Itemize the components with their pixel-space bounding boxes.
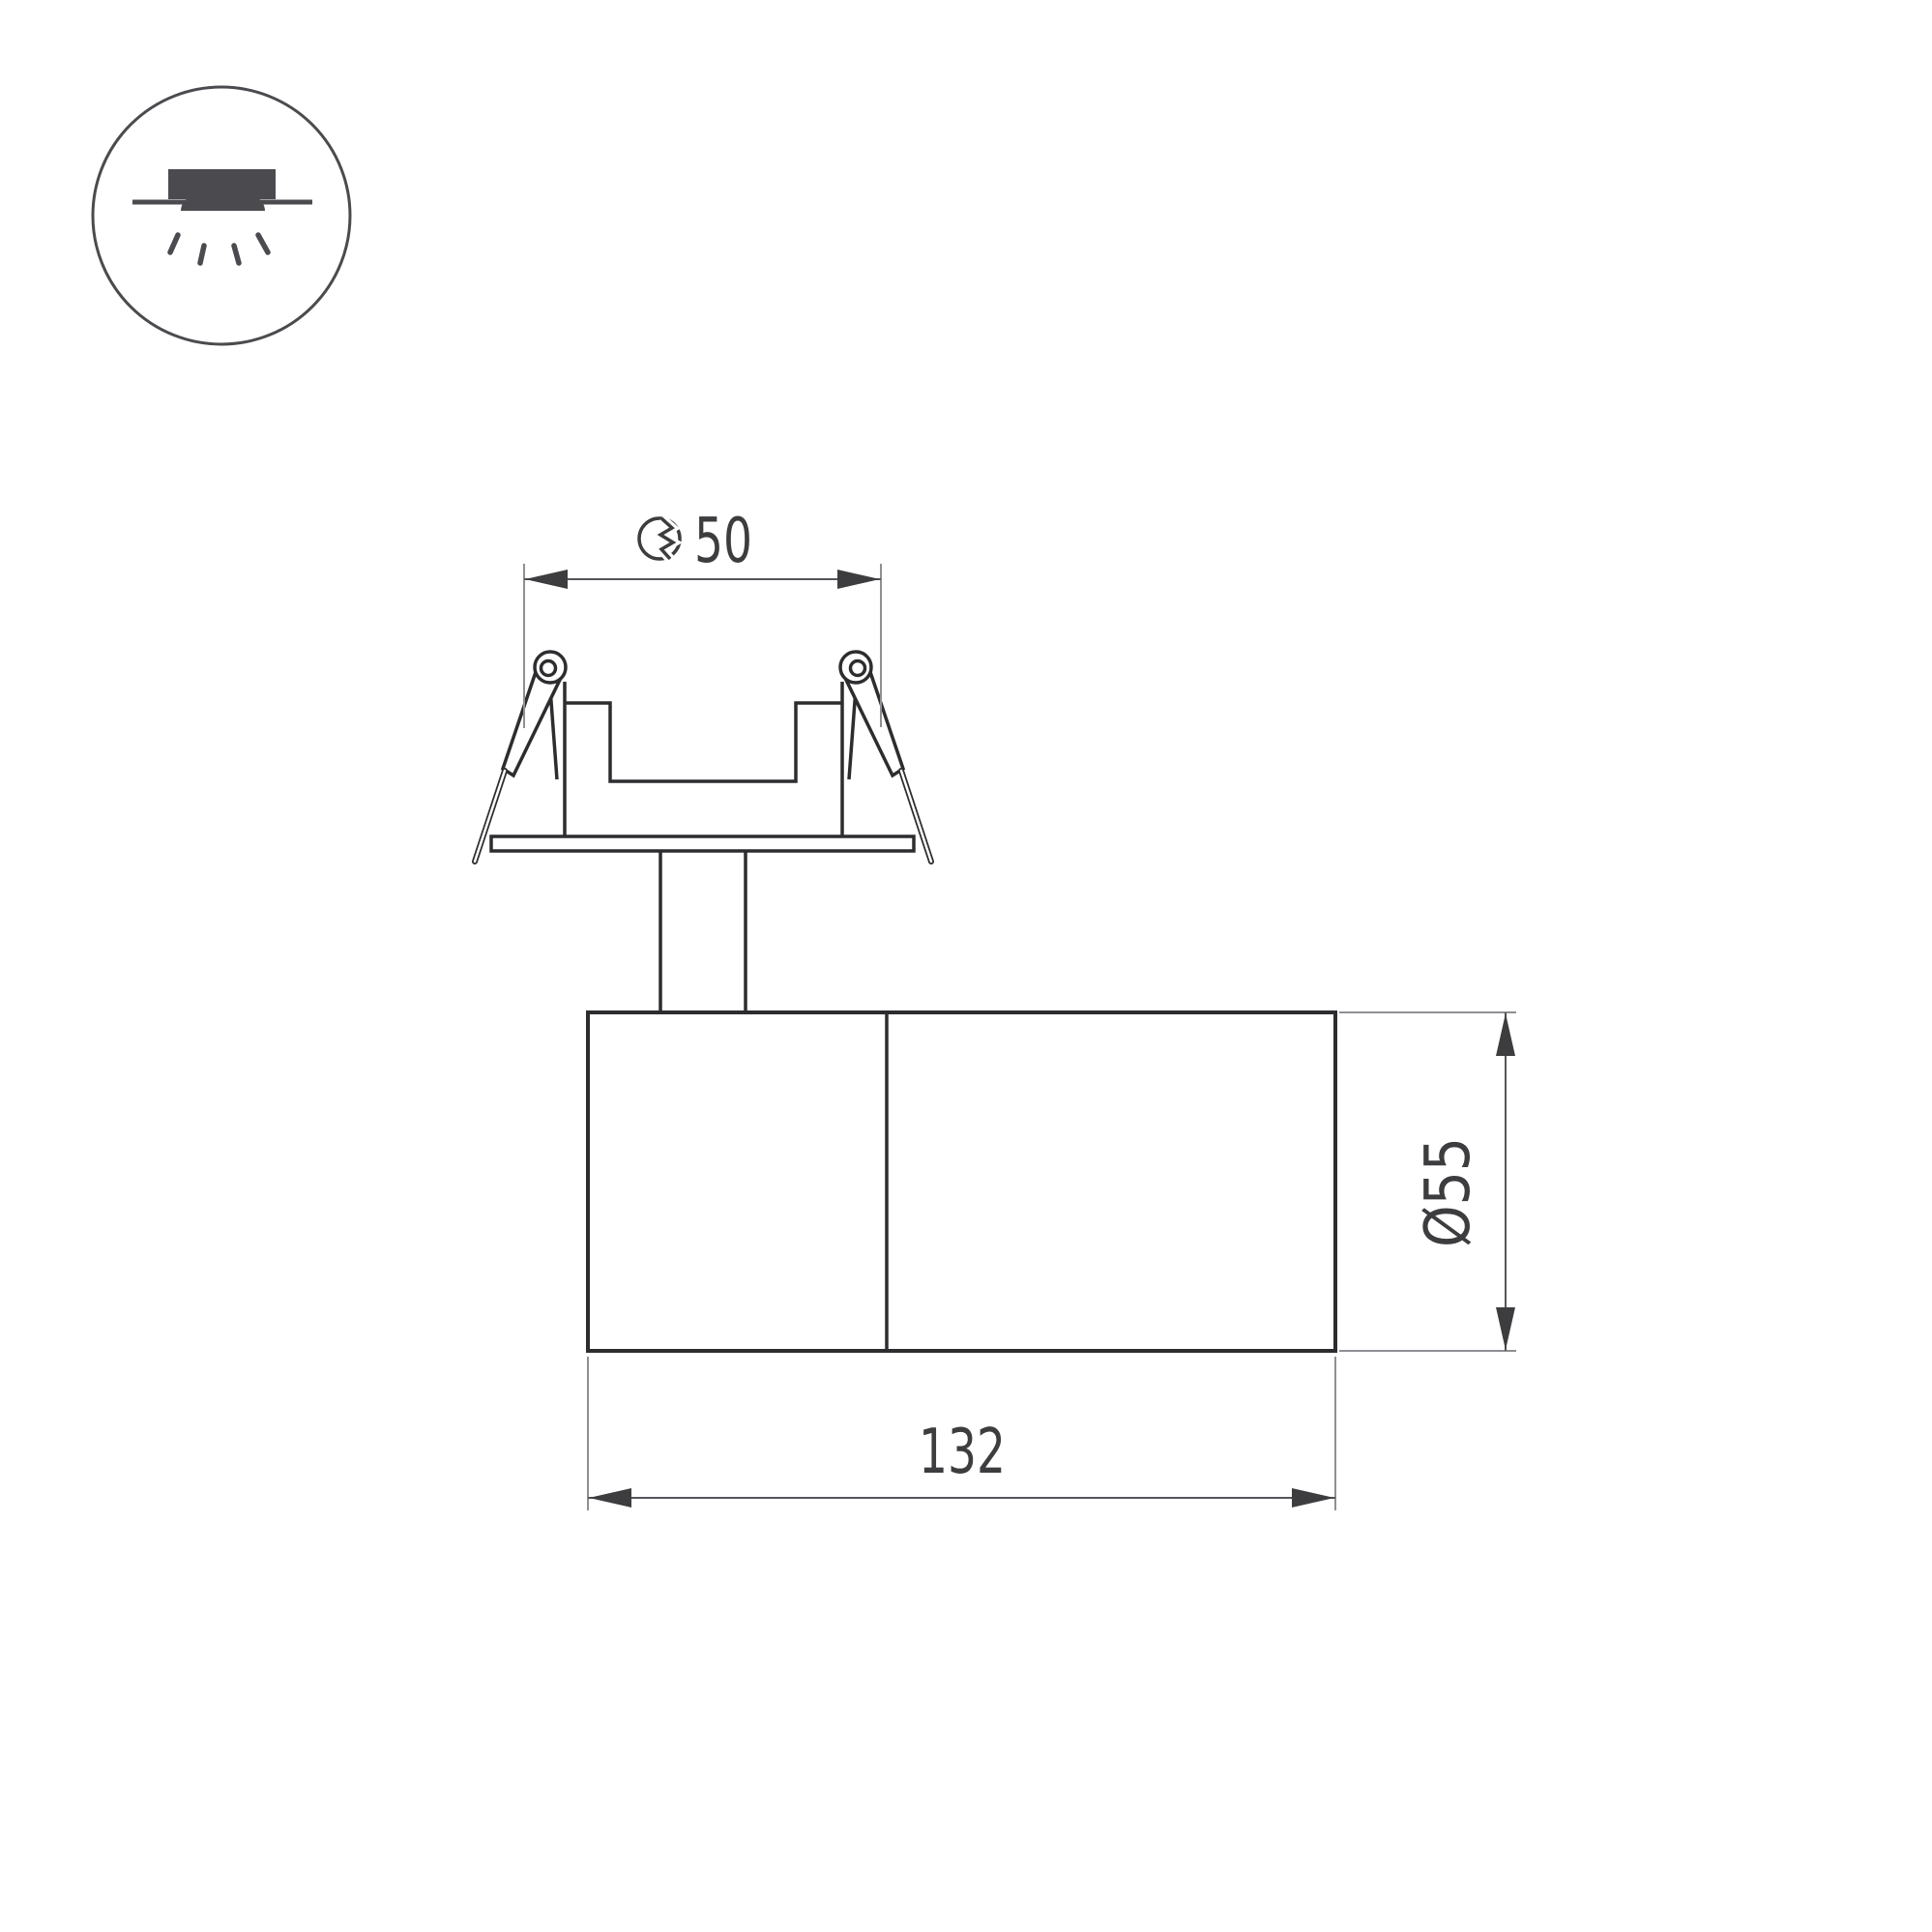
mounting-can-section [565, 682, 842, 836]
diameter-dimension: Ø55 [1339, 1012, 1516, 1351]
arrowhead-right [837, 570, 880, 589]
arrowhead-bottom [1496, 1307, 1515, 1350]
badge-ring [93, 87, 350, 344]
cutout-dimension-label: 50 [694, 506, 752, 577]
luminaire-drawing-canvas: 50 Ø55 132 [0, 0, 1932, 1932]
spring-clip-left [475, 652, 566, 862]
spring-wire [550, 688, 557, 779]
cutout-hole-icon [639, 518, 680, 559]
body-diameter-dimension-label: Ø55 [1413, 1137, 1484, 1247]
badge-light-ray [200, 246, 204, 263]
body-length-dimension-label: 132 [919, 1417, 1006, 1488]
mounting-flange [491, 836, 914, 851]
arrowhead-left [589, 1488, 631, 1508]
badge-light-ray [234, 246, 239, 263]
badge-light-ray [258, 235, 268, 252]
arrowhead-right [1292, 1488, 1334, 1508]
technical-drawing-page: 50 Ø55 132 [0, 0, 1932, 1932]
fixture-body [588, 1012, 1335, 1351]
clip-pivot [840, 652, 871, 683]
spring-clip-right [840, 652, 931, 862]
arrowhead-left [525, 570, 568, 589]
recessed-downlight-icon [93, 87, 350, 344]
length-dimension: 132 [588, 1357, 1335, 1510]
arrowhead-top [1496, 1013, 1515, 1056]
clip-pivot [535, 652, 566, 683]
cutout-dimension: 50 [524, 506, 881, 728]
badge-light-ray [170, 235, 178, 252]
mounting-can-profile [565, 682, 842, 836]
stem [660, 851, 746, 1012]
body-outline [588, 1012, 1335, 1351]
spring-wire [849, 688, 856, 779]
